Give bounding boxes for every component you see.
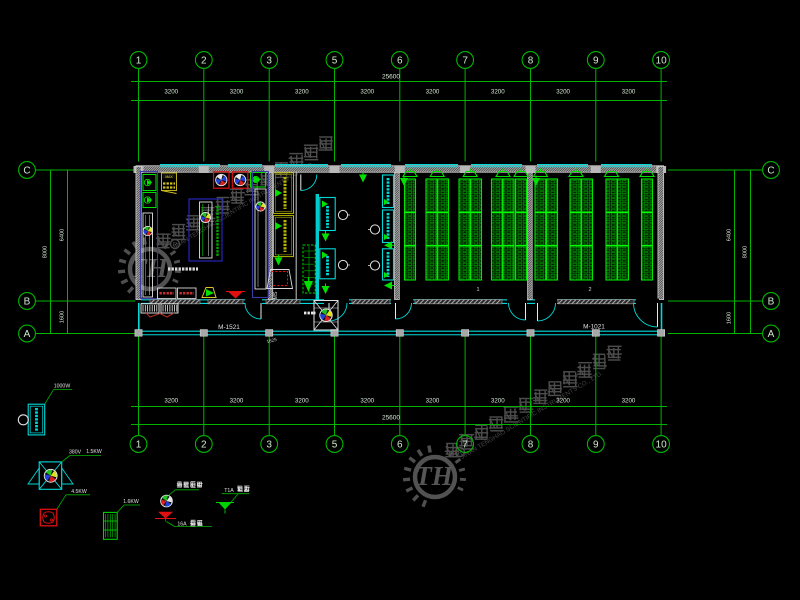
svg-text:1600: 1600 — [727, 312, 733, 324]
svg-text:1.6KW: 1.6KW — [123, 499, 139, 505]
svg-text:8: 8 — [528, 439, 534, 450]
svg-text:16A: 16A — [177, 521, 187, 527]
svg-text:5: 5 — [332, 439, 338, 450]
svg-text:6: 6 — [397, 55, 403, 66]
svg-text:9: 9 — [593, 55, 599, 66]
svg-text:1.5KW: 1.5KW — [86, 449, 102, 455]
svg-text:3200: 3200 — [491, 89, 505, 96]
svg-text:3200: 3200 — [295, 89, 309, 96]
svg-text:1: 1 — [476, 287, 479, 293]
svg-text:3200: 3200 — [556, 89, 570, 96]
svg-text:C: C — [23, 165, 30, 176]
svg-text:1000W: 1000W — [54, 384, 71, 390]
svg-text:2: 2 — [588, 287, 591, 293]
svg-text:3200: 3200 — [426, 89, 440, 96]
svg-text:7: 7 — [462, 55, 468, 66]
svg-text:2: 2 — [201, 439, 207, 450]
svg-text:3200: 3200 — [491, 398, 505, 405]
svg-text:1: 1 — [136, 55, 142, 66]
svg-text:MS: MS — [273, 291, 279, 299]
svg-text:3200: 3200 — [360, 89, 374, 96]
svg-text:1: 1 — [136, 439, 142, 450]
svg-text:7: 7 — [462, 439, 468, 450]
svg-text:6400: 6400 — [60, 229, 66, 241]
svg-text:3200: 3200 — [295, 398, 309, 405]
svg-text:3200: 3200 — [622, 89, 636, 96]
svg-text:M-1521: M-1521 — [218, 324, 240, 331]
svg-text:M-1021: M-1021 — [583, 324, 605, 331]
svg-text:6400: 6400 — [727, 229, 733, 241]
svg-text:MAX: MAX — [165, 175, 173, 179]
svg-text:6: 6 — [397, 439, 403, 450]
svg-text:25600: 25600 — [382, 415, 400, 422]
svg-text:TH: TH — [415, 461, 453, 491]
svg-text:3: 3 — [266, 439, 272, 450]
svg-text:10: 10 — [656, 439, 668, 450]
svg-text:3200: 3200 — [164, 398, 178, 405]
svg-text:3200: 3200 — [622, 398, 636, 405]
svg-text:C: C — [767, 165, 774, 176]
svg-text:3: 3 — [266, 55, 272, 66]
svg-text:8: 8 — [528, 55, 534, 66]
svg-text:10: 10 — [656, 55, 668, 66]
svg-text:3200: 3200 — [230, 398, 244, 405]
svg-text:3200: 3200 — [426, 398, 440, 405]
svg-text:1600: 1600 — [60, 311, 66, 323]
svg-text:A: A — [24, 329, 31, 340]
svg-text:9: 9 — [593, 439, 599, 450]
svg-text:T1A: T1A — [224, 488, 234, 494]
svg-text:380V: 380V — [69, 450, 82, 456]
svg-text:B: B — [24, 296, 31, 307]
svg-text:8000: 8000 — [43, 246, 49, 258]
svg-text:3200: 3200 — [556, 398, 570, 405]
svg-text:A: A — [768, 329, 775, 340]
svg-text:5: 5 — [332, 55, 338, 66]
svg-text:2: 2 — [201, 55, 207, 66]
svg-text:B: B — [768, 296, 775, 307]
svg-text:8000: 8000 — [743, 246, 749, 258]
svg-text:3200: 3200 — [164, 89, 178, 96]
svg-text:25600: 25600 — [382, 74, 400, 81]
svg-text:4.5KW: 4.5KW — [71, 489, 87, 495]
svg-text:3200: 3200 — [360, 398, 374, 405]
svg-text:3200: 3200 — [230, 89, 244, 96]
